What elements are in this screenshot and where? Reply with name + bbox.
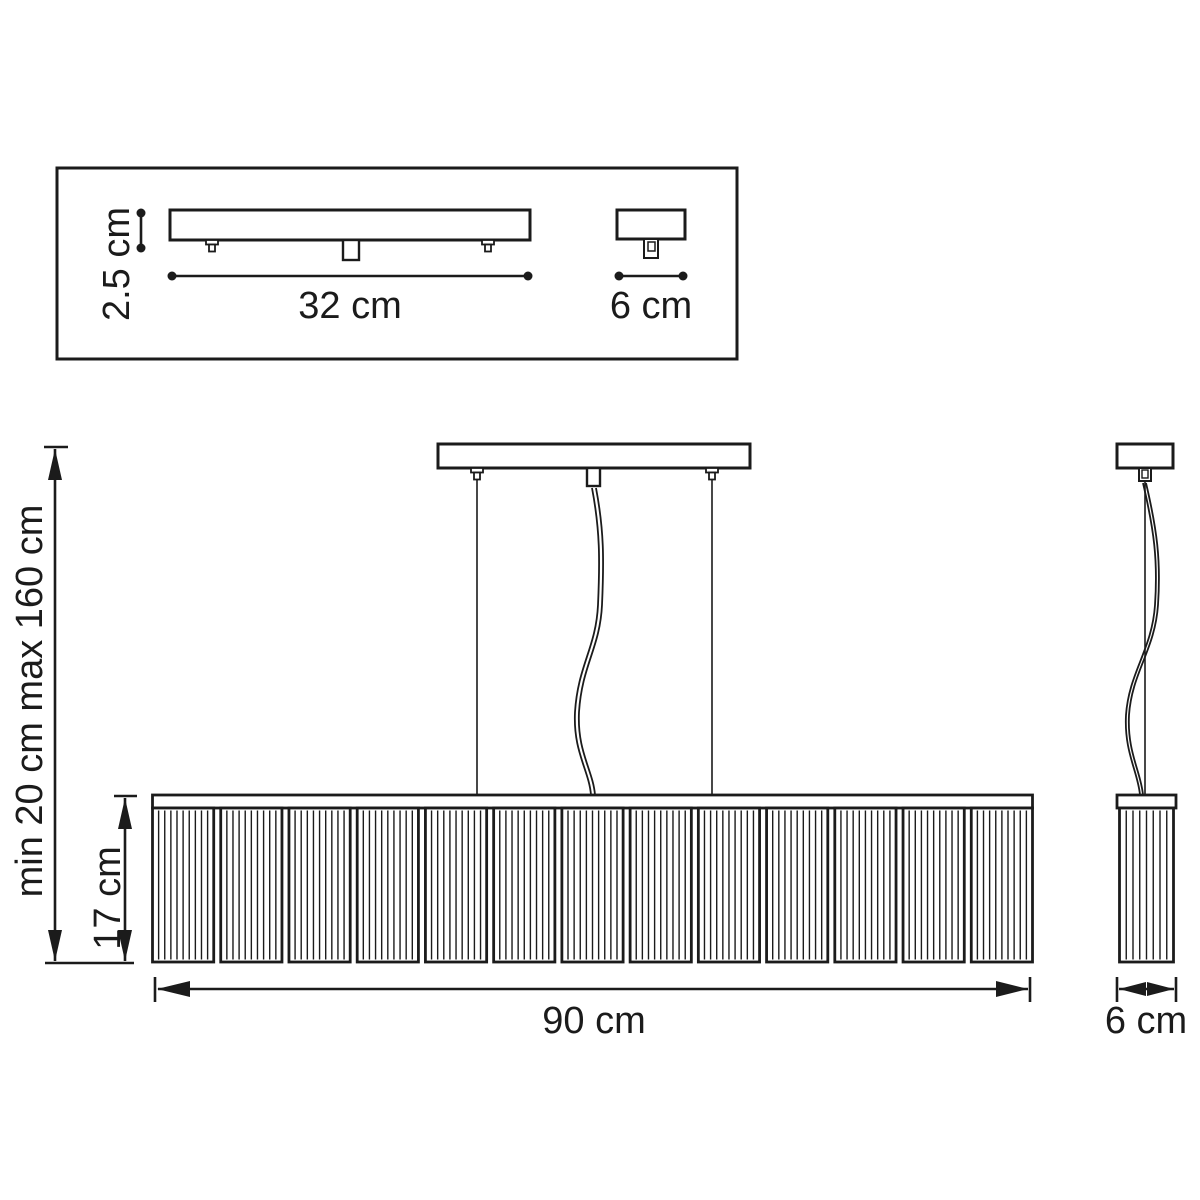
cable-gland-front (587, 468, 600, 486)
ceiling-plate-side (1117, 444, 1173, 468)
shade-panel (971, 808, 1032, 962)
shade-panel (630, 808, 691, 962)
shade-height-label: 17 cm (87, 846, 129, 949)
canopy-height-label: 2.5 cm (96, 207, 138, 321)
power-cable-front (575, 488, 603, 795)
canopy-screw-left (206, 240, 218, 252)
dimension-shade-height: 17 cm (87, 796, 137, 961)
shade-top-rail-front (153, 795, 1033, 808)
shade-width-label: 90 cm (542, 1000, 645, 1042)
ceiling-plate-front (438, 444, 750, 468)
pendant-lamp-dimension-drawing: 2.5 cm 32 cm 6 cm (0, 0, 1200, 1200)
side-view (1117, 444, 1176, 962)
shade-panel (357, 808, 418, 962)
canopy-plate-front (170, 210, 530, 240)
shade-panel (698, 808, 759, 962)
canopy-depth-label: 6 cm (610, 285, 692, 327)
shade-panel (835, 808, 896, 962)
shade-panel (767, 808, 828, 962)
shade-fluted-panels (153, 808, 1033, 962)
shade-panel (903, 808, 964, 962)
shade-panel (494, 808, 555, 962)
shade-panel (562, 808, 623, 962)
power-cable-side (1126, 483, 1159, 795)
dimension-suspension-range: min 20 cm max 160 cm (9, 447, 68, 961)
canopy-front-view (170, 210, 530, 260)
front-view (153, 444, 1033, 962)
shade-fluted-panel-side (1120, 808, 1174, 962)
dimension-shade-width: 90 cm (155, 977, 1030, 1042)
suspension-screw-left (471, 468, 483, 480)
canopy-plate-side (617, 210, 685, 239)
shade-panel (153, 808, 214, 962)
shade-panel (289, 808, 350, 962)
canopy-screw-right (482, 240, 494, 252)
shade-panel (425, 808, 486, 962)
detail-box-frame (57, 168, 737, 359)
dimension-canopy-length: 32 cm (168, 272, 533, 328)
canopy-length-label: 32 cm (298, 285, 401, 327)
technical-drawing-page: 2.5 cm 32 cm 6 cm (0, 0, 1200, 1200)
suspension-screw-right (706, 468, 718, 480)
canopy-side-view (617, 210, 685, 258)
dimension-canopy-depth: 6 cm (610, 272, 692, 328)
canopy-detail-box: 2.5 cm 32 cm 6 cm (57, 168, 737, 359)
shade-panel (221, 808, 282, 962)
canopy-side-screw (648, 242, 655, 251)
dimension-shade-depth: 6 cm (1105, 977, 1187, 1042)
cable-gland-side-screw (1142, 470, 1148, 478)
shade-top-rail-side (1117, 795, 1176, 808)
suspension-range-label: min 20 cm max 160 cm (9, 505, 51, 898)
dimension-canopy-height: 2.5 cm (96, 207, 146, 321)
canopy-center-bracket (343, 240, 359, 260)
shade-depth-label: 6 cm (1105, 1000, 1187, 1042)
